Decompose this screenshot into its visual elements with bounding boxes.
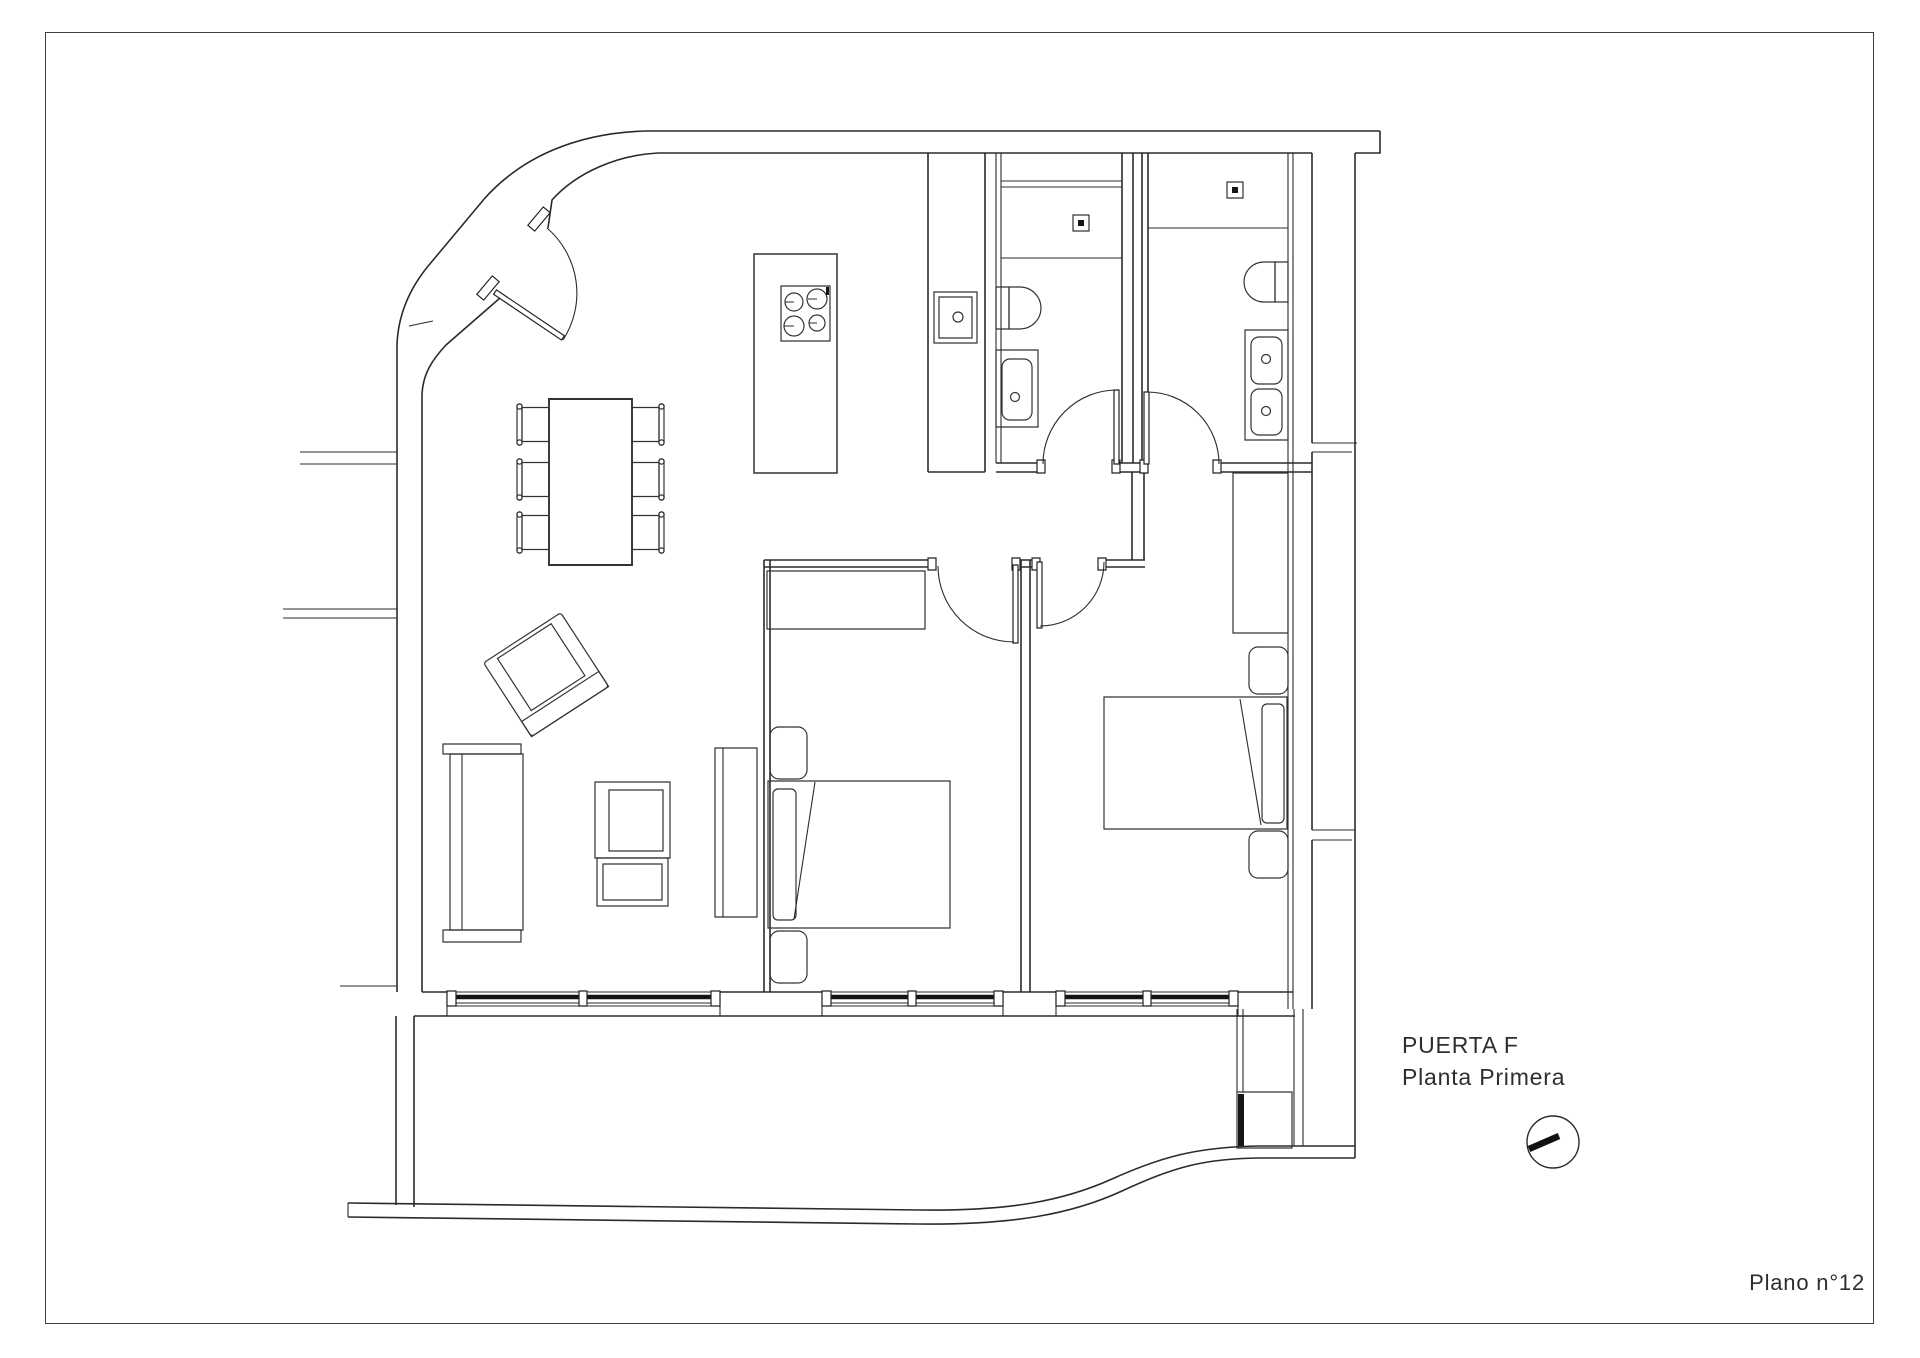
terrace <box>348 1009 1355 1224</box>
entry-door-swing-arc <box>547 228 577 340</box>
nightstand <box>1249 647 1288 694</box>
bedroom2-window <box>1056 991 1238 1006</box>
nightstand <box>770 931 807 983</box>
terrace-storage-box <box>1237 1092 1292 1148</box>
bedroom2-door <box>1032 558 1106 628</box>
armchair <box>484 613 609 737</box>
bedroom1-furniture <box>767 571 950 983</box>
living-room-window <box>447 991 720 1006</box>
dining-set <box>517 399 664 565</box>
bathroom1-door-leaf <box>1114 390 1119 464</box>
bedroom1-door-leaf <box>1013 565 1018 643</box>
double-bed <box>1104 697 1287 829</box>
washbasin-icon <box>996 350 1038 427</box>
double-bed <box>768 781 950 928</box>
orientation-clock-icon <box>1527 1116 1579 1168</box>
kitchen-sink <box>934 292 977 343</box>
wardrobe <box>767 571 925 629</box>
side-tables <box>595 782 670 906</box>
toilet-icon <box>996 287 1041 329</box>
bedroom1-window <box>822 991 1003 1006</box>
sofa <box>443 744 523 942</box>
bedroom2-door-leaf <box>1037 562 1042 628</box>
bedroom1-door-swing-arc <box>938 566 1014 642</box>
bathroom1-door-swing-arc <box>1043 390 1117 464</box>
drawing-sheet: PUERTA F Planta Primera Plano n°12 <box>0 0 1920 1358</box>
toilet-icon <box>1244 262 1288 302</box>
nightstand <box>1249 831 1288 878</box>
bathroom2-door-leaf <box>1144 392 1149 464</box>
bedroom2-door-swing-arc <box>1040 562 1104 626</box>
floor-plan <box>0 0 1920 1358</box>
kitchen-island <box>754 254 837 473</box>
double-washbasin-icon <box>1245 330 1288 440</box>
bathroom2 <box>1148 182 1288 440</box>
nightstand <box>770 727 807 779</box>
sheet-number-label: Plano n°12 <box>1700 1270 1865 1296</box>
shower-drain-icon <box>1227 182 1243 198</box>
bathroom1-door <box>1037 390 1120 473</box>
cooktop-icon <box>781 286 830 341</box>
floor-label: Planta Primera <box>1402 1064 1565 1091</box>
wardrobe <box>1233 473 1288 633</box>
interior-walls <box>414 153 1312 1016</box>
shower-drain-icon <box>1073 215 1089 231</box>
bathroom1 <box>996 181 1122 427</box>
faucet-icon <box>953 312 963 322</box>
entry-door <box>477 207 577 340</box>
apartment-label: PUERTA F <box>1402 1032 1519 1059</box>
bathroom2-door-swing-arc <box>1147 392 1219 464</box>
bathroom2-door <box>1140 392 1221 473</box>
bedroom1-door <box>928 558 1020 643</box>
shelf-unit <box>715 748 757 917</box>
entry-door-leaf <box>494 290 565 340</box>
